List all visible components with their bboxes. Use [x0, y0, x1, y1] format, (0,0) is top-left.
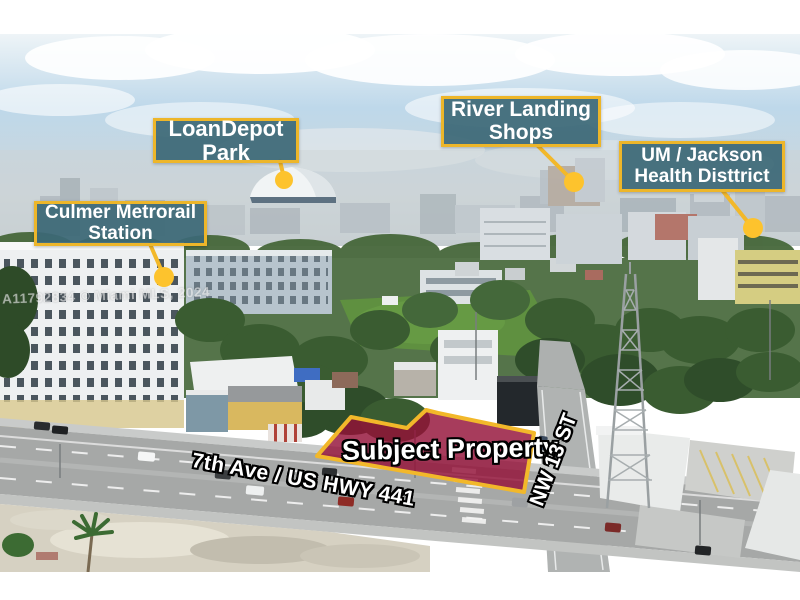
- marker-um-jackson: [743, 218, 763, 238]
- marker-loandepot-park: [275, 171, 293, 189]
- callout-um-line1: UM / Jackson: [641, 146, 762, 167]
- listing-photo-frame: LoanDepot Park River Landing Shops UM / …: [0, 0, 800, 600]
- callout-loandepot-park: LoanDepot Park: [153, 118, 299, 163]
- marker-river-landing: [564, 172, 584, 192]
- callout-culmer-line1: Culmer Metrorail: [45, 203, 196, 224]
- callout-um-line2: Health Disttrict: [634, 167, 769, 188]
- callout-river-line2: Shops: [489, 122, 553, 145]
- callout-loandepot-line2: Park: [202, 141, 250, 165]
- letterbox-bottom: [0, 572, 800, 600]
- callout-loandepot-line1: LoanDepot: [169, 117, 284, 141]
- callout-um-jackson-health-district: UM / Jackson Health Disttrict: [619, 141, 785, 192]
- marker-culmer-metrorail: [154, 267, 174, 287]
- callout-river-line1: River Landing: [451, 99, 591, 122]
- callout-river-landing-shops: River Landing Shops: [441, 96, 601, 147]
- callout-culmer-metrorail-station: Culmer Metrorail Station: [34, 201, 207, 246]
- left-apartment-tower: [0, 242, 184, 428]
- callout-culmer-line2: Station: [88, 224, 152, 245]
- letterbox-top: [0, 0, 800, 34]
- subject-property-label: Subject Property: [332, 432, 569, 467]
